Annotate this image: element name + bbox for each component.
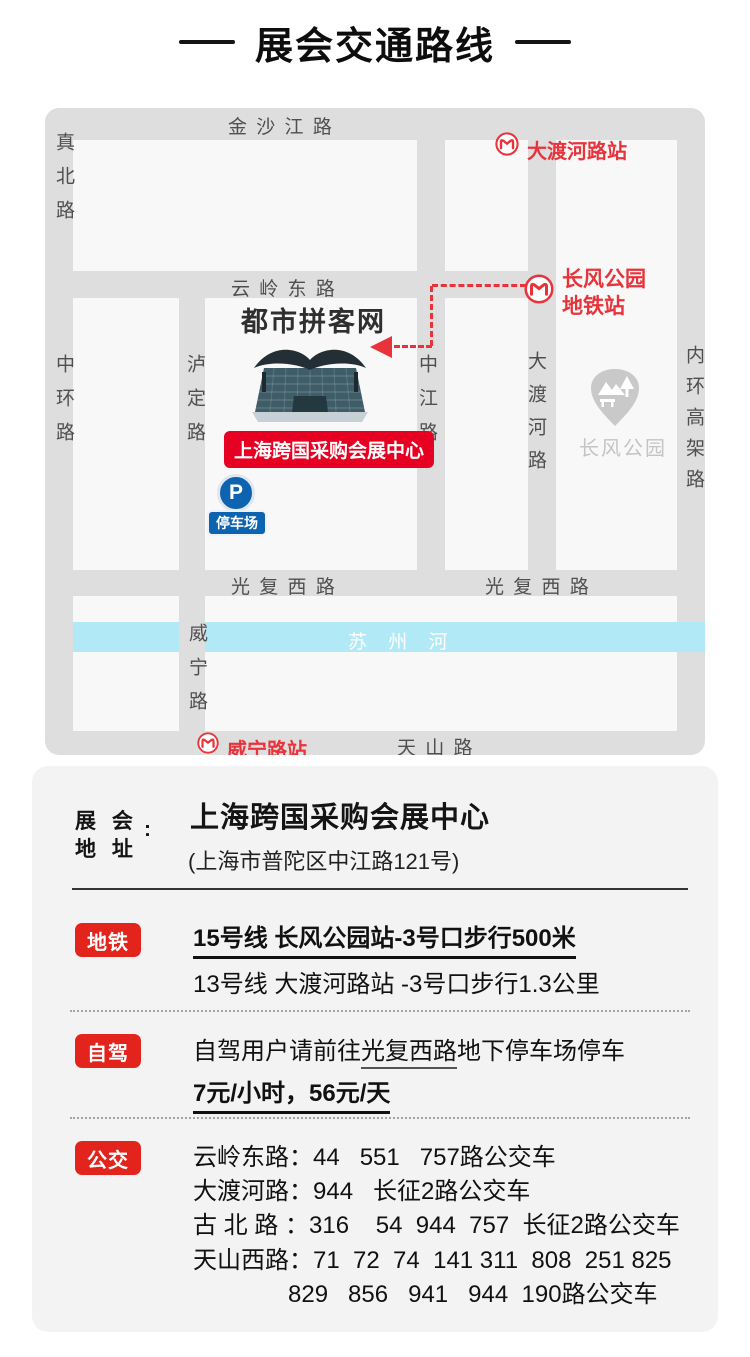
route-map: 金 沙 江 路 云 岭 东 路 光 复 西 路 光 复 西 路 天 山 路 苏 … bbox=[45, 108, 705, 755]
station-label-changfeng-line1: 长风公园 bbox=[562, 266, 646, 293]
parking-icon: P bbox=[217, 474, 255, 512]
venue-name: 上海跨国采购会展中心 bbox=[190, 794, 490, 836]
park-label: 长风公园 bbox=[579, 432, 667, 461]
watermark-text: 都市拼客网 bbox=[241, 300, 386, 339]
station-label-weininglu: 威宁路站 bbox=[227, 734, 307, 755]
map-block bbox=[73, 596, 179, 622]
station-label-changfeng: 长风公园 地铁站 bbox=[562, 266, 646, 320]
drive-line-1: 自驾用户请前往光复西路地下停车场停车 bbox=[193, 1031, 625, 1066]
road-label-guangfuxi-east: 光 复 西 路 bbox=[485, 572, 591, 599]
station-label-changfeng-line2: 地铁站 bbox=[562, 293, 646, 320]
divider bbox=[72, 888, 688, 890]
road-label-daduhe: 大渡河路 bbox=[522, 351, 549, 483]
station-label-daduhelu: 大渡河路站 bbox=[527, 135, 627, 164]
drive-line-1-prefix: 自驾用户请前往 bbox=[193, 1038, 361, 1065]
metro-line-1: 15号线 长风公园站-3号口步行500米 bbox=[193, 918, 576, 953]
route-arrow-icon bbox=[370, 336, 392, 358]
map-block bbox=[73, 652, 179, 731]
map-block bbox=[205, 596, 677, 622]
dotted-divider bbox=[70, 1010, 690, 1012]
road-label-tianshan: 天 山 路 bbox=[397, 733, 475, 755]
road-label-luding: 泸定路 bbox=[181, 354, 208, 456]
metro-line-2: 13号线 大渡河路站 -3号口步行1.3公里 bbox=[193, 964, 600, 999]
river-label: 苏 州 河 bbox=[348, 627, 456, 654]
drive-line-2: 7元/小时，56元/天 bbox=[193, 1073, 390, 1108]
drive-badge: 自驾 bbox=[75, 1034, 141, 1068]
bus-line-tianshanxilu-cont: 829 856 941 944 190路公交车 bbox=[288, 1274, 658, 1309]
title-dash-right bbox=[515, 40, 571, 44]
road-label-yunlingdong: 云 岭 东 路 bbox=[231, 274, 337, 301]
road-label-guangfuxi-west: 光 复 西 路 bbox=[231, 572, 337, 599]
route-dash-segment bbox=[394, 345, 432, 348]
map-block bbox=[73, 298, 179, 570]
address-colon: : bbox=[144, 818, 151, 842]
map-block bbox=[445, 298, 528, 570]
dotted-divider bbox=[70, 1117, 690, 1119]
drive-line-1-suffix: 地下停车场停车 bbox=[457, 1038, 625, 1065]
bus-line-gubeilu: 古 北 路 ：316 54 944 757 长征2路公交车 bbox=[193, 1205, 680, 1240]
venue-banner: 上海跨国采购会展中心 bbox=[224, 431, 434, 468]
metro-badge: 地铁 bbox=[75, 923, 141, 957]
map-block bbox=[205, 652, 677, 731]
info-card: 展 会 地 址 : 上海跨国采购会展中心 (上海市普陀区中江路121号) 地铁 … bbox=[32, 766, 718, 1332]
metro-logo-icon bbox=[197, 732, 219, 754]
address-label: 展 会 地 址 bbox=[75, 808, 138, 864]
park-pin-icon bbox=[587, 366, 643, 428]
map-block bbox=[73, 140, 417, 271]
drive-price-text: 7元/小时，56元/天 bbox=[193, 1080, 390, 1114]
metro-logo-icon bbox=[495, 132, 519, 156]
road-label-weining: 威宁路 bbox=[183, 623, 210, 725]
page-title: 展会交通路线 bbox=[255, 15, 495, 70]
map-block bbox=[556, 140, 677, 570]
bus-badge: 公交 bbox=[75, 1141, 141, 1175]
route-dash-segment bbox=[430, 286, 433, 346]
bus-line-tianshanxilu: 天山西路：71 72 74 141 311 808 251 825 bbox=[193, 1240, 672, 1275]
bus-line-daduhelu: 大渡河路：944 长征2路公交车 bbox=[193, 1171, 530, 1206]
title-dash-left bbox=[179, 40, 235, 44]
map-block bbox=[445, 140, 528, 271]
route-dash-segment bbox=[432, 284, 526, 287]
metro-logo-icon bbox=[524, 274, 554, 304]
exhibition-center-building-icon bbox=[250, 338, 370, 426]
road-label-jinshajiang: 金 沙 江 路 bbox=[228, 112, 334, 139]
road-label-zhonghuan: 中环路 bbox=[50, 354, 77, 456]
bus-line-yunlingdong: 云岭东路：44 551 757路公交车 bbox=[193, 1137, 556, 1172]
parking-label: 停车场 bbox=[207, 510, 267, 536]
metro-line-1-text: 15号线 长风公园站-3号口步行500米 bbox=[193, 925, 576, 959]
venue-address-detail: (上海市普陀区中江路121号) bbox=[188, 844, 459, 876]
page-title-row: 展会交通路线 bbox=[0, 14, 750, 70]
road-label-neihuangaojia: 内环高架路 bbox=[680, 345, 705, 500]
road-label-zhenbei: 真北路 bbox=[50, 132, 77, 234]
drive-line-1-road: 光复西路 bbox=[361, 1038, 457, 1069]
